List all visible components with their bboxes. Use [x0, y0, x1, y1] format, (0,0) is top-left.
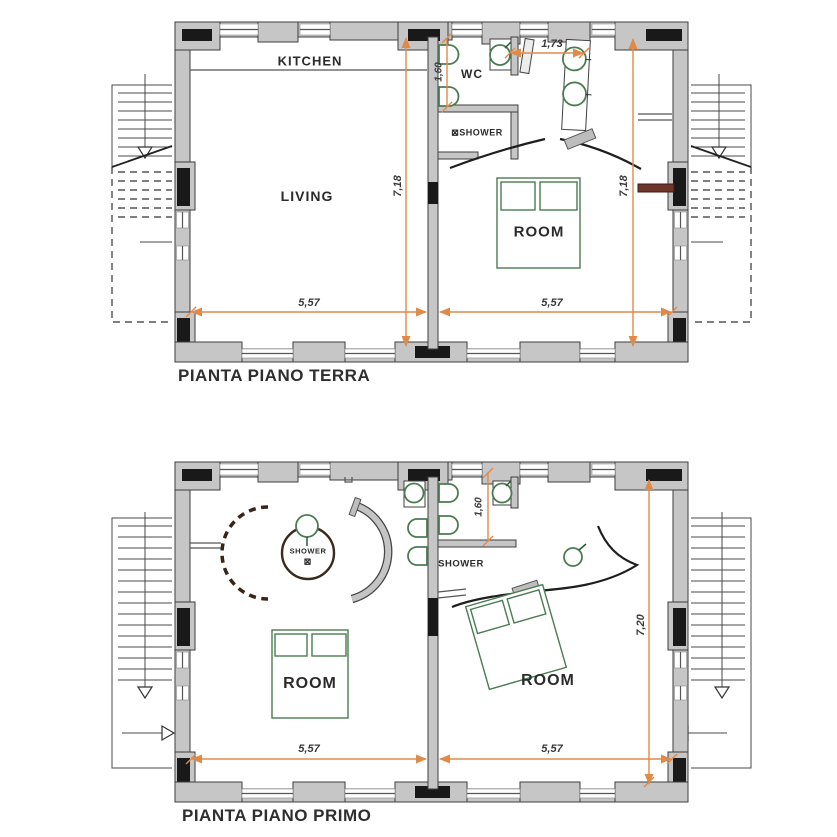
round-shower-label: SHOWER [290, 547, 327, 556]
pillow [540, 182, 577, 210]
room-label-kitchen: KITCHEN [278, 54, 343, 69]
ground-exterior-stair-right [691, 74, 751, 322]
dim-wc-depth: 1,60 [434, 62, 445, 81]
room-label-bedroom-left: ROOM [283, 675, 337, 693]
first-exterior-stair-left [112, 512, 174, 768]
wall-stub [438, 589, 466, 598]
floor-plan-document: KITCHEN LIVING WC ⊠SHOWER ROOM 1,73 1,60… [0, 0, 837, 837]
ground-interior-walls [190, 37, 674, 349]
desk-shelf [638, 184, 674, 192]
curved-wall-outline [352, 505, 388, 599]
room-label-shower-ground: ⊠SHOWER [451, 128, 503, 139]
dim-depth-right-first: 7,20 [635, 614, 647, 635]
shower-curtain-arc [222, 507, 268, 599]
toilet [439, 45, 459, 64]
door-knob-basin [564, 548, 582, 566]
shower-drain-icon: ⊠ [304, 557, 313, 568]
first-floor-plan [112, 462, 751, 802]
sink-basin [296, 515, 318, 537]
room-label-bedroom-ground: ROOM [514, 224, 565, 241]
wall-shelf [190, 543, 221, 548]
ground-exterior-stair-left [112, 74, 172, 322]
pillow [275, 634, 307, 656]
room-label-shower-first: SHOWER [438, 559, 484, 570]
first-interior-walls [190, 477, 518, 789]
ground-floor-title: PIANTA PIANO TERRA [178, 366, 370, 386]
dim-width-left-ground: 5,57 [298, 297, 319, 309]
stair-down-arrow [138, 687, 152, 698]
dim-entry-width: 1,73 [541, 38, 562, 50]
sink-basin [493, 484, 512, 503]
wall-shelf [638, 114, 672, 120]
dim-width-right-ground: 5,57 [541, 297, 562, 309]
ground-doors [450, 39, 641, 169]
sink-basin [405, 484, 424, 503]
stair-down-arrow [715, 687, 729, 698]
first-floor-title: PIANTA PIANO PRIMO [182, 806, 371, 826]
dim-depth-right-ground: 7,18 [618, 175, 630, 196]
bidet [408, 547, 427, 565]
room-label-living: LIVING [281, 188, 334, 204]
dim-depth-left-ground: 7,18 [392, 175, 404, 196]
ground-floor-plan [112, 22, 751, 362]
bidet [439, 87, 459, 106]
toilet [408, 519, 427, 537]
toilet [439, 484, 458, 502]
direction-arrow [162, 726, 174, 740]
dim-width-left-first: 5,57 [298, 743, 319, 755]
first-bathroom-fixtures [404, 481, 512, 565]
bidet [439, 516, 458, 534]
shower-drain-icon: ⊠ [451, 128, 459, 138]
floor-plan-drawing [0, 0, 837, 837]
dim-bathroom-depth: 1,60 [474, 497, 485, 516]
first-bedroom-left-bed [272, 630, 348, 718]
room-label-bedroom-right: ROOM [521, 672, 575, 690]
faucet-tick [579, 544, 586, 550]
room-label-wc: WC [461, 67, 483, 81]
shower-label-text: SHOWER [459, 128, 503, 138]
dim-width-right-first: 5,57 [541, 743, 562, 755]
sink-basin [490, 45, 510, 65]
entry-door-leaf [520, 39, 534, 74]
pillow [501, 182, 535, 210]
pillow [312, 634, 346, 656]
